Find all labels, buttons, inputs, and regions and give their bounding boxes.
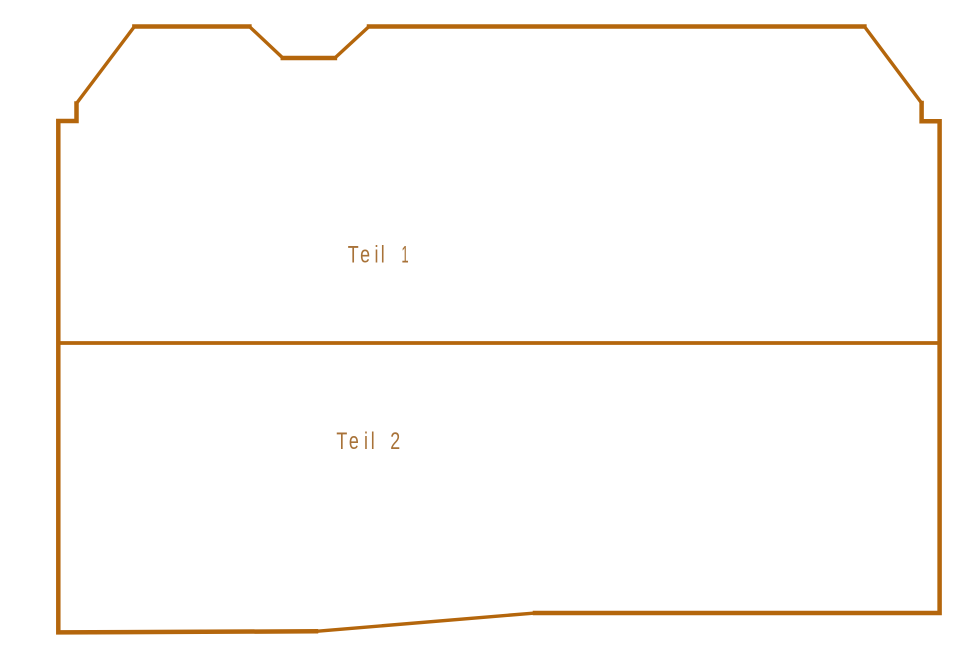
svg-text:Teil2: Teil2 (336, 429, 400, 455)
svg-text:1: 1 (401, 243, 408, 269)
svg-text:Teil: Teil (348, 242, 385, 268)
